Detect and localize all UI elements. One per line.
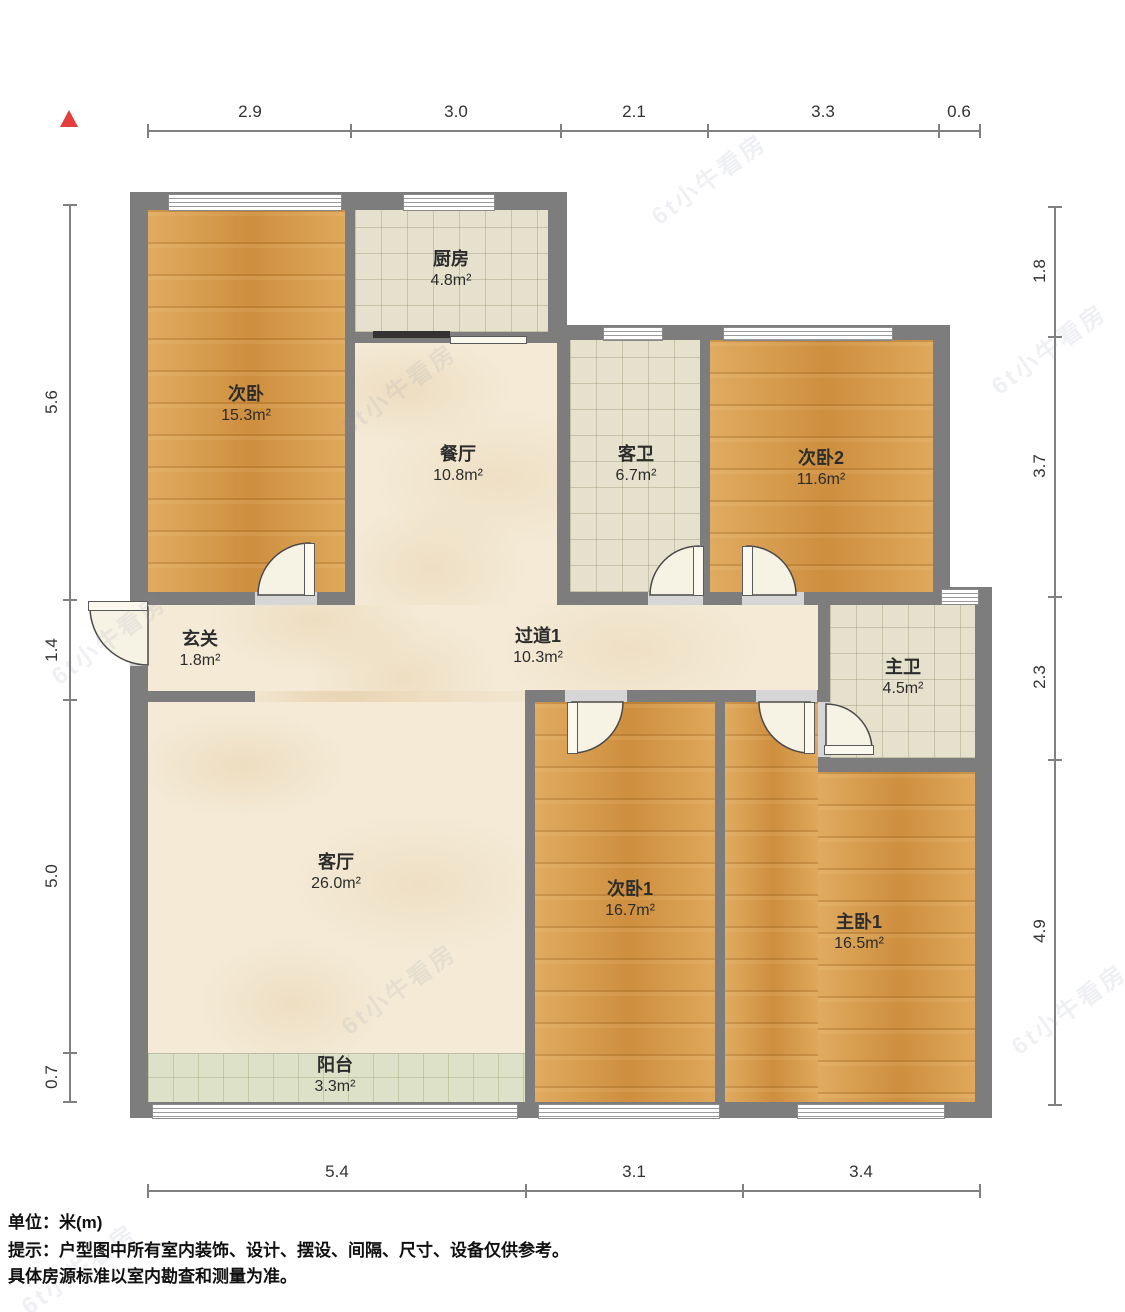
dim-tick xyxy=(63,699,77,701)
north-arrow-icon xyxy=(60,110,78,127)
room-area: 6.7m² xyxy=(616,465,657,487)
dim-label-top-3: 3.3 xyxy=(811,102,835,122)
room-name: 厨房 xyxy=(431,248,472,270)
dim-label-bottom-2: 3.4 xyxy=(849,1162,873,1182)
dim-tick xyxy=(63,1052,77,1054)
window xyxy=(797,1104,945,1119)
dim-label-top-1: 3.0 xyxy=(444,102,468,122)
room-name: 主卫 xyxy=(883,656,924,678)
room-name: 阳台 xyxy=(315,1054,356,1076)
dim-tick xyxy=(979,124,981,138)
dim-tick xyxy=(525,1184,527,1198)
room-area: 1.8m² xyxy=(180,650,221,672)
window xyxy=(603,327,663,341)
watermark: 6t小牛看房 xyxy=(643,124,773,232)
floor-bedroom-zhuwo1-left xyxy=(725,702,818,1102)
room-area: 10.8m² xyxy=(433,465,483,487)
door-gap-zhuwo1 xyxy=(756,690,817,702)
dim-line-bottom xyxy=(148,1190,981,1192)
dim-tick xyxy=(147,1184,149,1198)
dim-label-right-1: 3.7 xyxy=(1030,454,1050,478)
window xyxy=(168,194,342,211)
room-name: 次卧1 xyxy=(605,878,655,900)
door-slab-entry xyxy=(88,601,148,611)
window xyxy=(403,194,495,211)
floor-hallway-opening xyxy=(255,691,525,702)
dim-label-right-3: 4.9 xyxy=(1030,919,1050,943)
dim-label-bottom-1: 3.1 xyxy=(622,1162,646,1182)
room-name: 过道1 xyxy=(513,625,563,647)
room-label-kewei: 客卫 6.7m² xyxy=(616,443,657,487)
room-name: 次卧 xyxy=(221,383,271,405)
dim-label-left-2: 5.0 xyxy=(42,864,62,888)
dim-label-left-1: 1.4 xyxy=(42,638,62,662)
room-area: 16.7m² xyxy=(605,900,655,922)
wall xyxy=(548,210,567,343)
dim-tick xyxy=(63,599,77,601)
room-area: 15.3m² xyxy=(221,405,271,427)
dim-label-right-0: 1.8 xyxy=(1030,259,1050,283)
floor-plan-canvas: 次卧 15.3m² 厨房 4.8m² 餐厅 10.8m² 客卫 6.7m² 次卧… xyxy=(0,0,1125,1312)
dim-label-bottom-0: 5.4 xyxy=(325,1162,349,1182)
room-label-yangtai: 阳台 3.3m² xyxy=(315,1054,356,1098)
door-slab-ciwo xyxy=(304,543,315,596)
window xyxy=(723,327,893,341)
dim-label-right-2: 2.3 xyxy=(1030,665,1050,689)
dim-tick xyxy=(1048,596,1062,598)
dim-tick xyxy=(63,204,77,206)
dim-tick xyxy=(147,124,149,138)
wall xyxy=(715,690,725,1102)
room-area: 3.3m² xyxy=(315,1076,356,1098)
room-name: 次卧2 xyxy=(797,447,846,469)
dim-label-top-2: 2.1 xyxy=(622,102,646,122)
wall xyxy=(525,690,535,1102)
dim-line-right xyxy=(1054,207,1056,1105)
dim-tick xyxy=(1048,206,1062,208)
wall xyxy=(933,325,950,605)
dim-label-left-0: 5.6 xyxy=(42,390,62,414)
room-label-guodao1: 过道1 10.3m² xyxy=(513,625,563,669)
dim-label-top-0: 2.9 xyxy=(238,102,262,122)
dim-tick xyxy=(979,1184,981,1198)
door-slab-ciwo2 xyxy=(742,546,753,596)
wall xyxy=(148,592,355,605)
door-slab-zhuwo1 xyxy=(804,702,815,754)
floor-hallway xyxy=(148,605,818,691)
room-area: 16.5m² xyxy=(834,933,884,955)
room-area: 11.6m² xyxy=(797,469,846,491)
dim-tick xyxy=(1048,336,1062,338)
wall xyxy=(148,691,255,702)
door-slab-kewei xyxy=(693,546,704,596)
footer-tip-line2: 具体房源标准以室内勘查和测量为准。 xyxy=(8,1262,297,1287)
watermark: 6t小牛看房 xyxy=(983,294,1113,402)
wall xyxy=(975,587,992,1118)
dim-tick xyxy=(938,124,940,138)
wall xyxy=(345,210,355,605)
footer-tip-line1: 提示：户型图中所有室内装饰、设计、摆设、间隔、尺寸、设备仅供参考。 xyxy=(8,1236,569,1261)
dim-tick xyxy=(1048,759,1062,761)
room-area: 10.3m² xyxy=(513,647,563,669)
room-name: 客厅 xyxy=(311,851,361,873)
room-label-zhuwei: 主卫 4.5m² xyxy=(883,656,924,700)
dim-label-top-4: 0.6 xyxy=(947,102,971,122)
room-name: 玄关 xyxy=(180,628,221,650)
room-area: 4.5m² xyxy=(883,678,924,700)
room-label-keting: 客厅 26.0m² xyxy=(311,851,361,895)
room-label-ciwo2: 次卧2 11.6m² xyxy=(797,447,846,491)
room-name: 餐厅 xyxy=(433,443,483,465)
door-gap-ciwo1 xyxy=(565,690,627,702)
room-label-chufang: 厨房 4.8m² xyxy=(431,248,472,292)
dim-line-left xyxy=(69,205,71,1103)
window xyxy=(152,1104,518,1119)
room-label-canting: 餐厅 10.8m² xyxy=(433,443,483,487)
room-label-zhuwo1: 主卧1 16.5m² xyxy=(834,911,884,955)
window xyxy=(538,1104,720,1119)
door-slab-ciwo1 xyxy=(567,702,578,754)
door-gap-entry xyxy=(130,606,148,666)
dim-tick xyxy=(1048,1104,1062,1106)
dim-line-top xyxy=(148,130,981,132)
dim-tick xyxy=(63,1101,77,1103)
room-name: 主卧1 xyxy=(834,911,884,933)
dim-tick xyxy=(560,124,562,138)
room-name: 客卫 xyxy=(616,443,657,465)
dim-tick xyxy=(707,124,709,138)
sliding-door-panel-dark xyxy=(373,331,450,338)
footer-unit: 单位：米(m) xyxy=(8,1208,102,1233)
room-area: 26.0m² xyxy=(311,873,361,895)
door-slab-zhuwei xyxy=(824,745,874,755)
room-label-xuanguan: 玄关 1.8m² xyxy=(180,628,221,672)
wall xyxy=(557,325,570,603)
dim-label-left-3: 0.7 xyxy=(42,1065,62,1089)
room-area: 4.8m² xyxy=(431,270,472,292)
watermark: 6t小牛看房 xyxy=(1003,954,1125,1062)
dim-tick xyxy=(742,1184,744,1198)
room-label-ciwo: 次卧 15.3m² xyxy=(221,383,271,427)
room-label-ciwo1: 次卧1 16.7m² xyxy=(605,878,655,922)
window xyxy=(941,589,979,605)
sliding-door-panel-light xyxy=(450,336,527,344)
wall xyxy=(818,758,992,772)
dim-tick xyxy=(350,124,352,138)
